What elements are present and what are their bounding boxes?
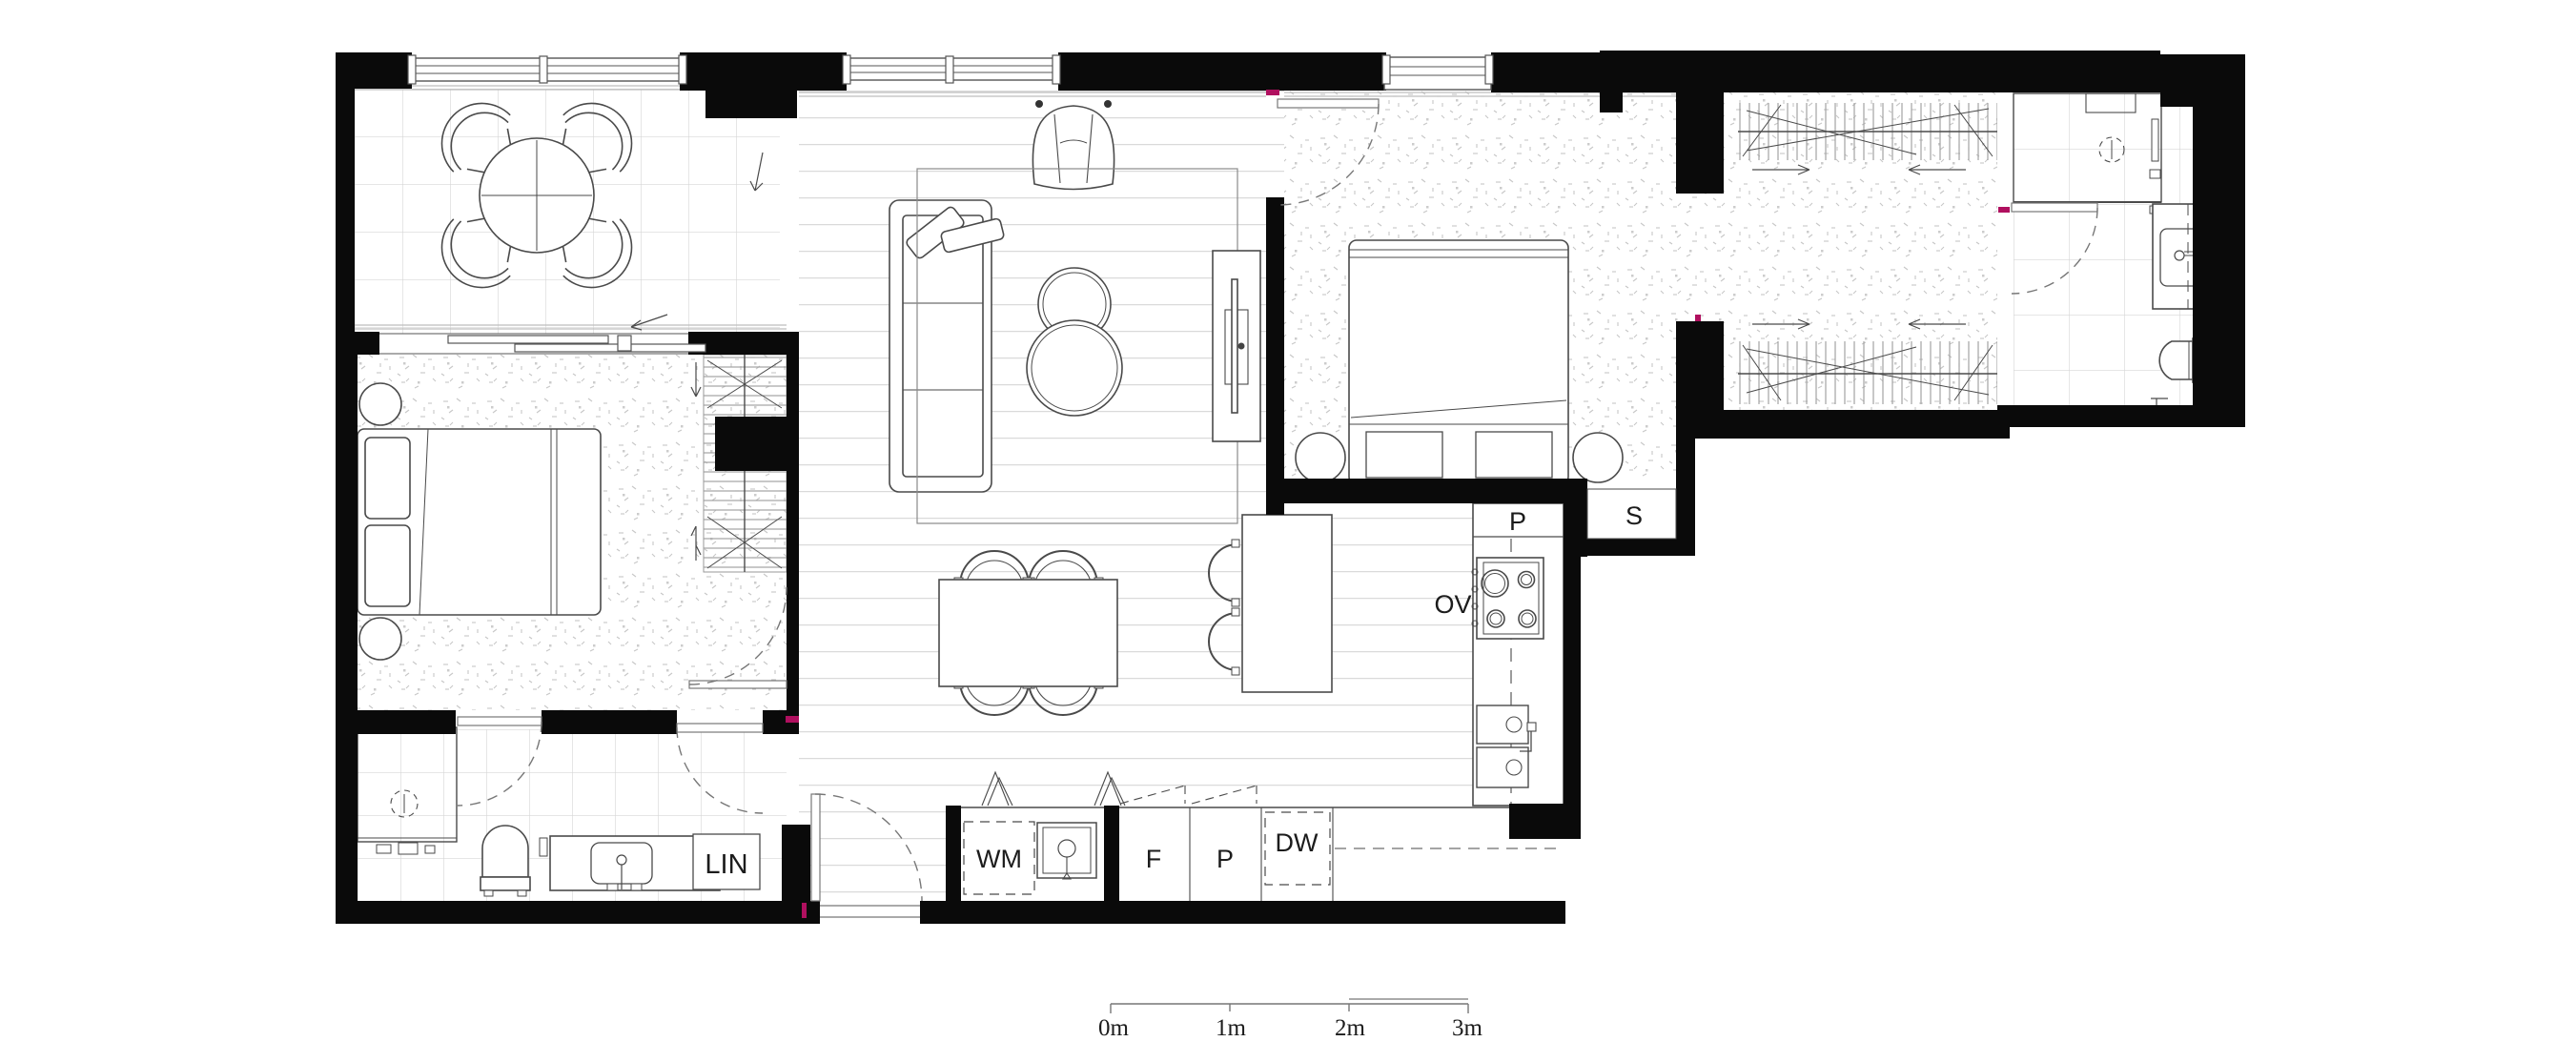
scale-bar: 0m 1m 2m 3m [1098,999,1483,1041]
label-pantry-bench: P [1216,845,1234,873]
sofa [889,200,1005,492]
bedside-table [1296,433,1345,482]
floor-plan: OV P S WM F P DW LIN 0m 1m 2m 3m [0,0,2576,1062]
robe-opening-carpet [1676,194,1724,321]
dining-table [939,580,1117,686]
balcony-window [408,55,686,84]
bedroom2-sliding-door [379,334,705,354]
living-floorboards [799,91,1266,901]
tv-unit [1213,251,1260,441]
scale-1m: 1m [1216,1015,1247,1041]
living-window [843,55,1060,84]
kitchen-counter [1472,503,1564,806]
label-linen: LIN [705,849,747,880]
bedside-table [359,618,401,660]
label-oven: OV [1434,590,1471,619]
sink-tap [1527,723,1536,731]
scale-2m: 2m [1335,1015,1366,1041]
laundry-tub [1037,823,1096,879]
pillow [1476,432,1552,478]
scale-3m: 3m [1452,1015,1483,1041]
label-dishwasher: DW [1276,828,1319,857]
pillow [365,525,410,606]
bedside-table [1573,433,1623,482]
master-window [1382,55,1493,90]
pillow [365,438,410,519]
toilet [480,826,530,896]
coffee-tables [1027,268,1122,416]
bedroom2-robe-block [715,417,787,471]
label-washing-machine: WM [976,845,1022,873]
scale-0m: 0m [1098,1015,1130,1041]
cooktop [1472,558,1544,639]
tv [1232,279,1237,413]
label-storage: S [1625,501,1643,530]
towel-rail [540,838,547,856]
label-pantry-tall: P [1509,507,1526,536]
bedside-table [359,383,401,425]
pillow [1366,432,1442,478]
label-fridge: F [1146,845,1162,873]
